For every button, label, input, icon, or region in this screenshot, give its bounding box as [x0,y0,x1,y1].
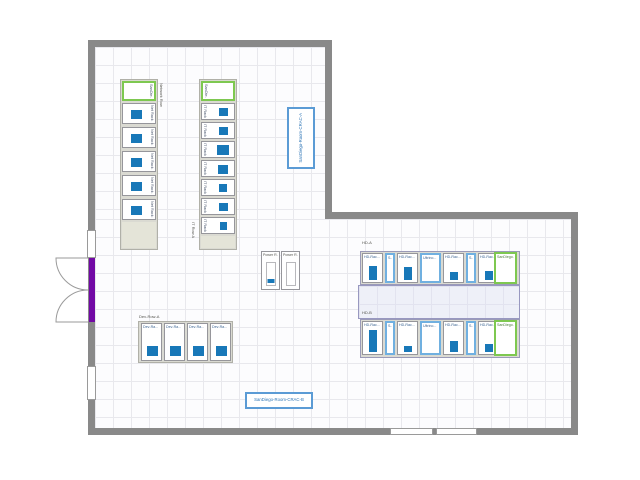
rack-hdb-2[interactable]: S... [385,321,395,355]
rack-label: SanDie... [149,84,153,98]
rack-hda-2[interactable]: S... [385,253,395,283]
rack-hda-5[interactable]: HD-Rac... [443,253,464,283]
rack-label: IT Rack 7 [203,219,207,232]
utilization-block [131,158,142,167]
utilization-block [131,182,142,191]
rack-label: IT Rack 4 [203,162,207,175]
utilization-block [147,346,158,356]
rack-hdb-1[interactable]: HD-Rac... [362,321,383,355]
rack-label: HD-Rac... [364,255,381,259]
rack-label: IT Rack 5 [203,181,207,194]
it-row-head[interactable]: SanDie... [201,81,235,101]
utilization-bar [369,266,377,280]
utilization-bar [450,341,458,352]
dev-row-label: Dev-Row-A [139,315,159,319]
rack-label: Net Rack 1 [150,105,154,122]
rack-label: IT Rack 1 [203,105,207,118]
utilization-bar [404,267,412,280]
rack-hdb-3[interactable]: HD-Rac... [397,321,418,355]
utilization-bar [369,330,377,352]
utilization-bar [485,344,493,352]
it-row-label: IT Row A [191,222,195,252]
rack-net-1[interactable]: Net Rack 1 [122,103,156,124]
utilization-block [216,346,227,356]
crac-a-label: SanDiego-Room-CRAC-A [299,113,303,163]
crac-b-label: SanDiego-Room-CRAC-B [254,398,304,402]
utilization-block [131,134,142,143]
rack-label: SanDie... [204,84,208,98]
rack-it-4[interactable]: IT Rack 4 [201,160,235,177]
rack-hda-1[interactable]: HD-Rac... [362,253,383,283]
rack-label: IT Rack 3 [203,143,207,156]
rack-label: Power R... [283,253,298,257]
left-double-door [89,258,95,322]
rack-label: Dev-Ra... [212,325,229,329]
crac-unit-a[interactable]: SanDiego-Room-CRAC-A [287,107,315,169]
utilization-block [131,110,142,119]
rack-label: HD-Rac... [445,323,462,327]
rack-label: SanDiego... [497,323,514,327]
network-row-empty-slot [122,222,156,248]
utilization-block [170,346,181,356]
utilization-block [193,346,204,356]
network-row-label: Network Row [159,83,163,133]
rack-hda-6[interactable]: S... [466,253,476,283]
bottom-door-left [390,428,433,435]
rack-hda-4[interactable]: Ultrino... [420,253,441,283]
rack-label: Ultrino... [423,324,438,328]
rack-label: HD-Rac... [399,255,416,259]
utilization-block [131,206,142,215]
rack-hdb-6[interactable]: S... [466,321,476,355]
door-swing-arcs [0,0,640,480]
rack-dev-1[interactable]: Dev-Ra... [141,323,162,361]
rack-label: HD-Rac... [445,255,462,259]
rack-net-2[interactable]: Net Rack 2 [122,127,156,148]
rack-hdb-8[interactable]: SanDiego... [494,320,517,356]
crac-unit-b[interactable]: SanDiego-Room-CRAC-B [245,392,313,409]
utilization-block [218,165,228,174]
network-row-head[interactable]: SanDie... [122,81,156,101]
rack-label: Net Rack 4 [150,177,154,194]
rack-label: Dev-Ra... [166,325,183,329]
rack-label: IT Rack 2 [203,124,207,137]
rack-label: Power R... [263,253,278,257]
rack-label: S... [388,324,392,328]
rack-it-1[interactable]: IT Rack 1 [201,103,235,120]
rack-label: Net Rack 3 [150,153,154,170]
rack-it-2[interactable]: IT Rack 2 [201,122,235,139]
rack-it-6[interactable]: IT Rack 6 [201,198,235,215]
rack-label: IT Rack 6 [203,200,207,213]
rack-hdb-5[interactable]: HD-Rac... [443,321,464,355]
rack-power-2[interactable]: Power R... [281,251,300,290]
left-wall-window-lower [87,366,96,400]
rack-it-3[interactable]: IT Rack 3 [201,141,235,158]
rack-it-5[interactable]: IT Rack 5 [201,179,235,196]
rack-label: S... [469,324,473,328]
utilization-bar [485,271,493,280]
rack-label: Ultrino... [423,256,438,260]
rack-dev-2[interactable]: Dev-Ra... [164,323,185,361]
rack-label: HD-Rac... [364,323,381,327]
utilization-bar [267,279,274,283]
it-row-empty-slot [201,236,235,248]
utilization-block [217,145,229,155]
hd-b-row-label: HD-B [362,311,372,315]
rack-hdb-4[interactable]: Ultrino... [420,321,441,355]
rack-dev-4[interactable]: Dev-Ra... [210,323,231,361]
rack-hda-8[interactable]: SanDiego... [494,252,517,284]
hd-a-row-label: HD-A [362,241,372,245]
utilization-bar [450,272,458,280]
hd-containment-aisle [358,285,520,319]
rack-net-3[interactable]: Net Rack 3 [122,151,156,172]
rack-net-5[interactable]: Net Rack 5 [122,199,156,220]
rack-label: HD-Rac... [399,323,416,327]
rack-label: S... [469,256,473,260]
utilization-block [219,108,228,116]
power-rack-body [286,262,296,286]
rack-net-4[interactable]: Net Rack 4 [122,175,156,196]
utilization-block [219,127,228,135]
utilization-block [219,184,227,192]
rack-it-7[interactable]: IT Rack 7 [201,217,235,234]
rack-label: Dev-Ra... [189,325,206,329]
rack-hda-3[interactable]: HD-Rac... [397,253,418,283]
rack-label: SanDiego... [497,255,514,259]
rack-dev-3[interactable]: Dev-Ra... [187,323,208,361]
utilization-bar [404,346,412,352]
utilization-block [219,203,228,211]
utilization-block [220,222,227,230]
bottom-door-right [436,428,477,435]
floorplan-canvas: Network Row SanDie... Net Rack 1 Net Rac… [0,0,640,480]
rack-power-1[interactable]: Power R... [261,251,280,290]
rack-label: Dev-Ra... [143,325,160,329]
rack-label: Net Rack 5 [150,201,154,218]
rack-label: Net Rack 2 [150,129,154,146]
rack-label: S... [388,256,392,260]
